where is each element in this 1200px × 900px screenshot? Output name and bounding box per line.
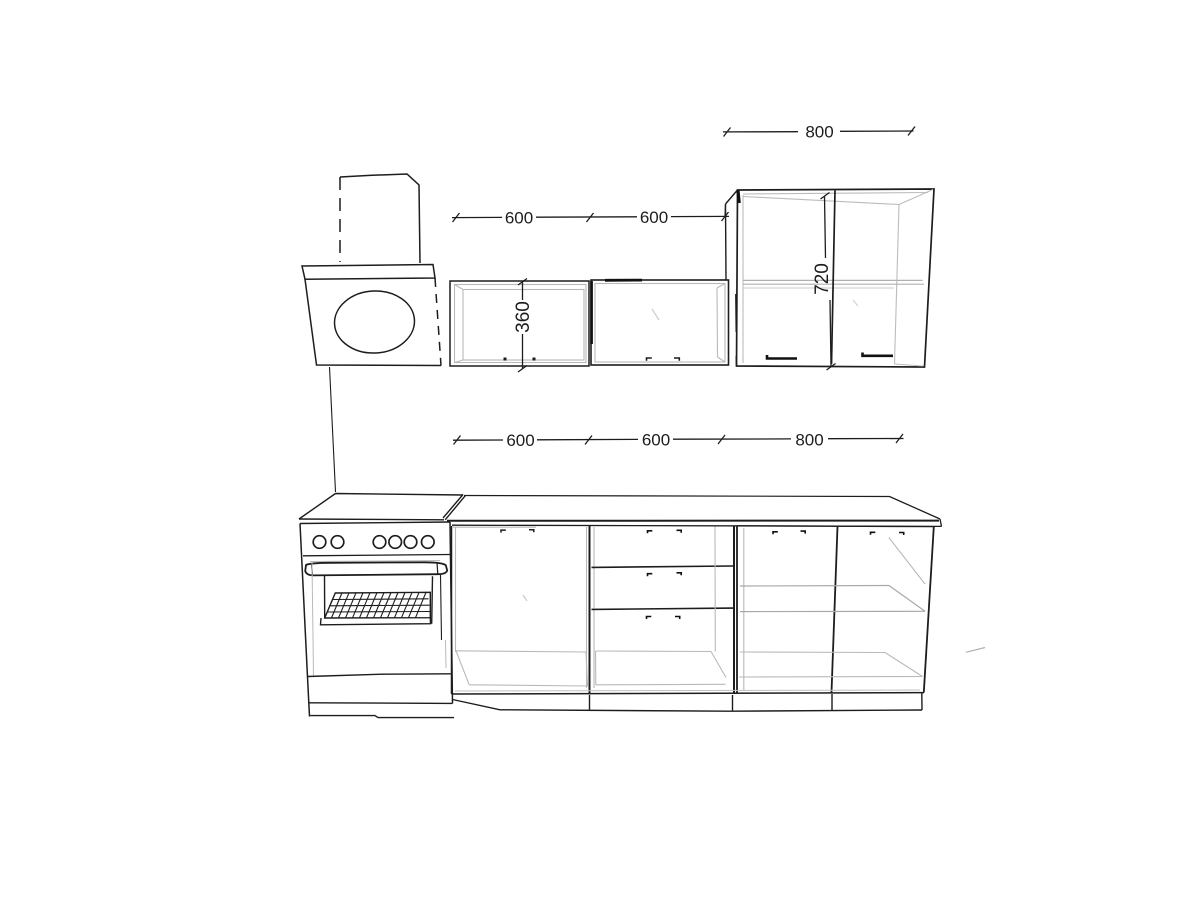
svg-text:600: 600 — [506, 431, 534, 450]
svg-text:800: 800 — [805, 123, 833, 142]
svg-text:600: 600 — [642, 430, 670, 449]
svg-text:800: 800 — [795, 430, 823, 449]
svg-text:600: 600 — [505, 208, 533, 227]
svg-text:720: 720 — [812, 263, 833, 295]
svg-text:600: 600 — [640, 208, 668, 227]
svg-text:360: 360 — [513, 301, 534, 333]
